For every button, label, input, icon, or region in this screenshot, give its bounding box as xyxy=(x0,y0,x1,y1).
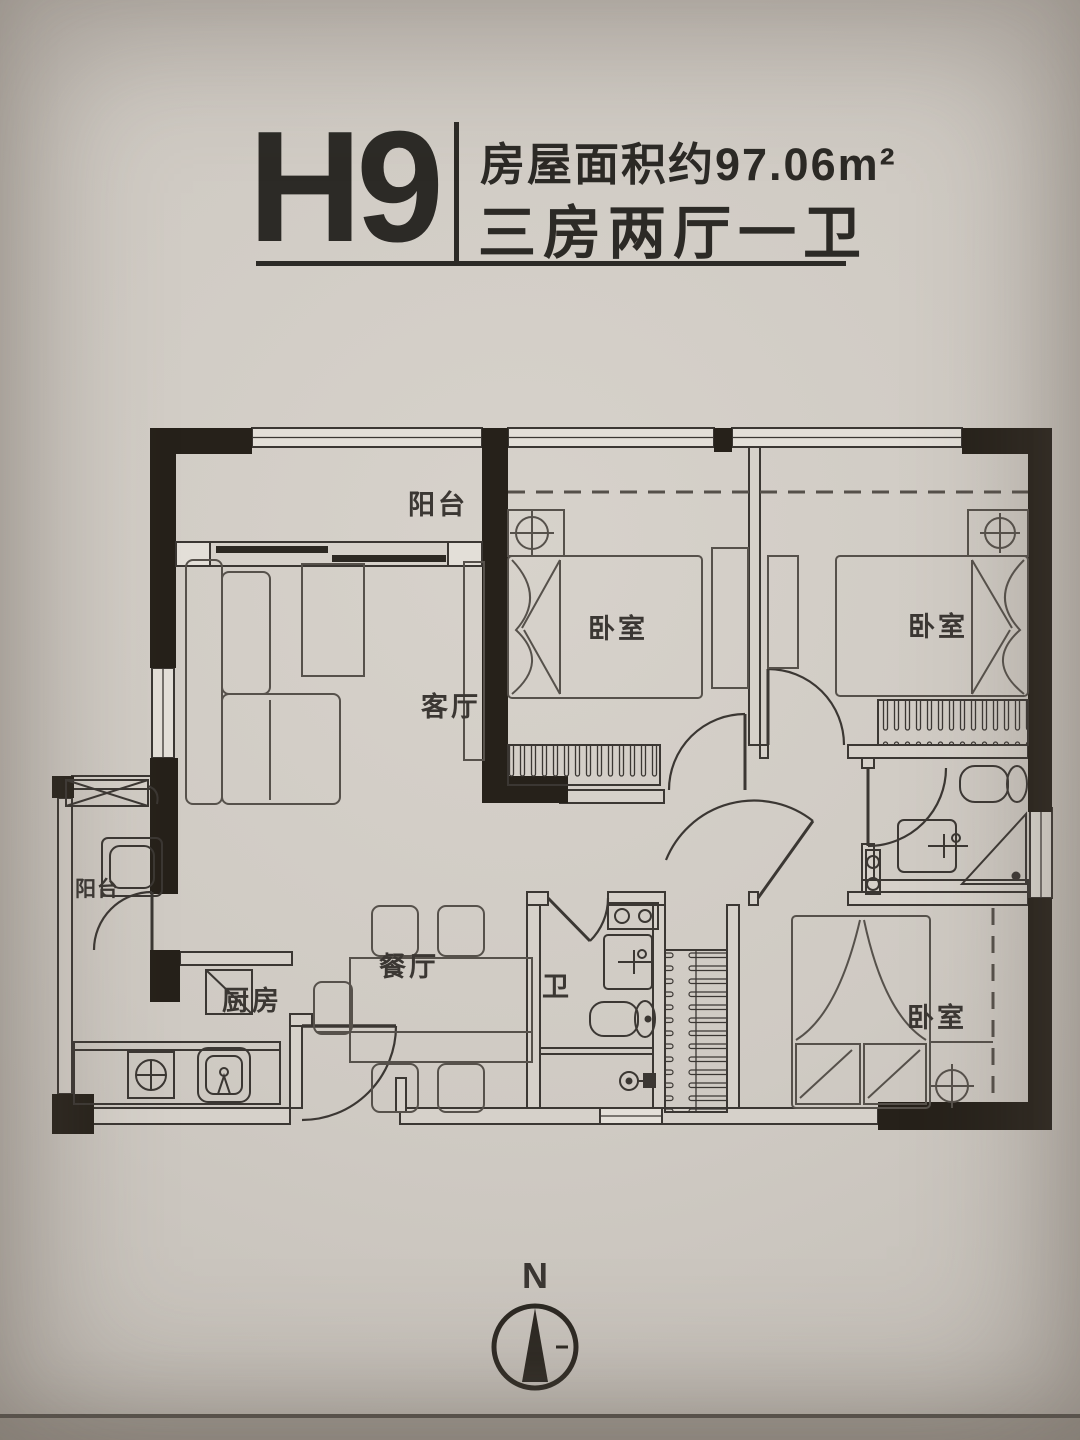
wall-east-upper xyxy=(1028,428,1052,812)
chair xyxy=(438,1064,484,1112)
toilet-tank xyxy=(1007,766,1027,802)
room-label-balcony-side: 阳台 xyxy=(75,877,119,901)
wall-bath-top-a xyxy=(527,892,548,905)
sliding-door-balcony-top xyxy=(176,542,482,566)
sofa-back xyxy=(186,560,222,804)
floorplan-photo: H9 房屋面积约97.06m² 三房两厅一卫 xyxy=(0,0,1080,1440)
wall-bedroom-divider xyxy=(749,447,760,745)
bedroom-mid-furniture xyxy=(508,510,748,785)
coffee-table xyxy=(302,564,364,676)
wardrobe-hatch xyxy=(878,700,1028,745)
sofa-chaise xyxy=(222,694,340,804)
bedside-table xyxy=(712,548,748,688)
wall-kitchen-north xyxy=(180,952,292,965)
toilet xyxy=(960,766,1008,802)
room-label-bathroom: 卫 xyxy=(542,972,572,1002)
compass-needle-icon xyxy=(522,1308,548,1382)
wall-bedroom-right-bottom-b xyxy=(848,745,1028,758)
compass-north-label: N xyxy=(522,1255,548,1296)
wall-living-bedroom-pier xyxy=(482,428,508,802)
door-bedroom-mid xyxy=(669,714,745,790)
door-bath xyxy=(548,898,608,941)
bedroom-right-furniture xyxy=(768,510,1028,745)
room-label-bedroom-bottom: 卧室 xyxy=(907,1002,967,1033)
room-label-balcony-top: 阳台 xyxy=(408,489,468,520)
wall-west-balcony-kitchen xyxy=(58,798,72,1094)
wall-bath-west xyxy=(527,905,540,1112)
bath2-fixtures xyxy=(866,766,1027,894)
shower-valve xyxy=(644,1074,655,1087)
knob xyxy=(615,909,629,923)
wall-bedroom-right-bottom-a xyxy=(760,745,768,758)
room-label-dining: 餐厅 xyxy=(379,952,439,982)
entry-door-stop xyxy=(290,1014,312,1026)
entry-door-jamb xyxy=(396,1078,406,1112)
sliding-panel-1 xyxy=(216,546,328,553)
wall-east-lower xyxy=(1028,898,1052,1112)
knob xyxy=(639,910,651,922)
door-bedroom-right xyxy=(768,669,844,745)
bedside-table xyxy=(768,556,798,668)
room-label-bedroom-right: 卧室 xyxy=(908,611,968,642)
tv-cabinet xyxy=(464,562,484,760)
floorplan-drawing: 阳台 客厅 卧室 卧室 卧室 餐厅 厨房 卫 阳台 N xyxy=(0,0,1080,1440)
wall-bottom-kitchen xyxy=(92,1108,290,1124)
door-bath2 xyxy=(868,768,946,846)
photo-bottom-edge xyxy=(0,1414,1080,1440)
wall-kitchen-east xyxy=(290,1020,302,1108)
toilet xyxy=(590,1002,638,1036)
wall-top-left-v xyxy=(150,428,176,668)
dining-table xyxy=(350,958,532,1062)
door-bedroom3 xyxy=(666,801,813,898)
room-label-living: 客厅 xyxy=(421,691,481,722)
living-room-furniture xyxy=(186,560,484,804)
room-label-bedroom-mid: 卧室 xyxy=(588,613,648,644)
room-label-kitchen: 厨房 xyxy=(222,986,282,1016)
sliding-panel-2 xyxy=(332,555,446,562)
wall-bath2-west-a xyxy=(862,758,874,768)
wall-bedroom3-west xyxy=(727,905,739,1112)
chair xyxy=(372,906,418,956)
bed-drape xyxy=(1003,560,1024,694)
wardrobe-hatch xyxy=(508,745,660,785)
pillow xyxy=(796,1044,860,1104)
compass: N xyxy=(494,1255,576,1388)
dining-furniture xyxy=(314,906,532,1112)
wall-bottom-dining xyxy=(400,1108,600,1124)
wall-bottom-right xyxy=(878,1102,1052,1130)
sofa-seat xyxy=(222,572,270,694)
chair xyxy=(438,906,484,956)
wall-bedroom-mid-bottom xyxy=(560,790,664,803)
wall-window-mullion xyxy=(714,428,732,452)
wall-bedroom3-top-a xyxy=(749,892,758,905)
wall-balcony-door-pier xyxy=(150,950,180,1002)
